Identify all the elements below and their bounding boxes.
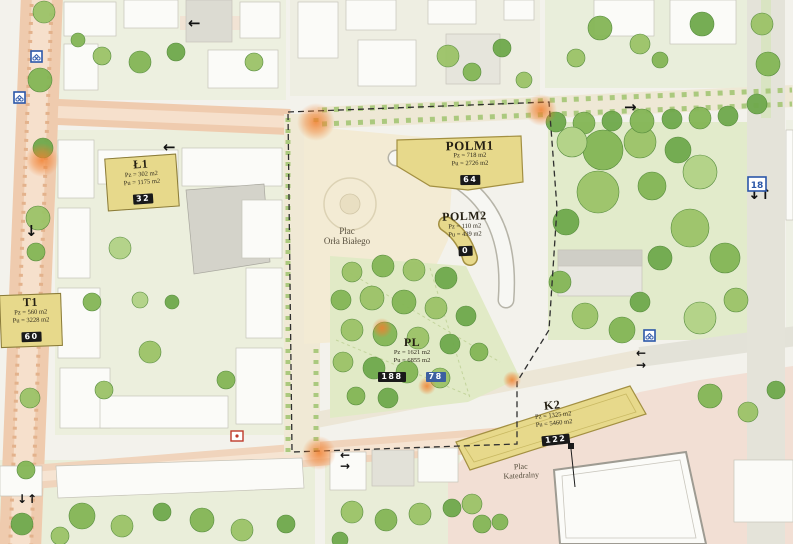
svg-text:18: 18 (751, 181, 764, 191)
arrow-right-icon: → (340, 459, 350, 473)
map-canvas: ← ← → ↓ ↓ ↑ ← → ← → ↓ ↑ (0, 0, 793, 544)
bike-sign-icon (644, 330, 655, 341)
arrow-up-icon: ↑ (27, 492, 37, 506)
bike-sign-icon (31, 51, 42, 62)
arrow-down-icon: ↓ (25, 222, 38, 240)
arrow-right-icon: → (636, 358, 646, 372)
arrow-right-icon: → (624, 98, 637, 116)
red-sign-icon (231, 431, 243, 441)
bike-sign-icon (14, 92, 25, 103)
site-plan-map: ← ← → ↓ ↓ ↑ ← → ← → ↓ ↑ (0, 0, 793, 544)
arrow-left-icon: ← (188, 14, 201, 32)
arrow-down-icon: ↓ (17, 492, 27, 506)
arrow-left-icon: ← (163, 138, 176, 156)
polm2-building (446, 224, 470, 258)
route-number-sign: 18 (748, 177, 766, 191)
